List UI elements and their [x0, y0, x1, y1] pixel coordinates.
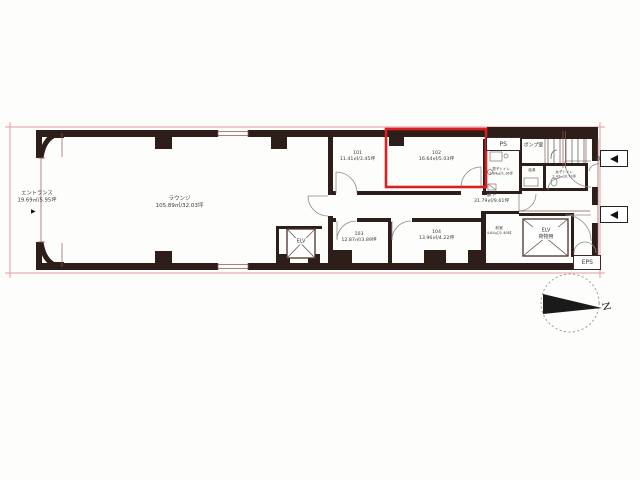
left-arrow-icon: [610, 211, 618, 219]
left-arrow-icon: [610, 155, 618, 163]
corridor-label: 廊下 31.79㎡/9.61坪: [464, 192, 519, 204]
womens-toilet-label: 女子トイレ 2.43㎡/0.73坪: [545, 170, 584, 179]
room-104-label: 104 13.96㎡/4.22坪: [391, 229, 482, 241]
room-entrance-label: エントランス 19.69㎡/5.95坪: [11, 190, 63, 204]
entry-arrow-tab-lower: [600, 206, 628, 223]
entry-arrow-tab-upper: [600, 150, 628, 167]
eps-shaft-label: EPS: [573, 255, 601, 270]
mens-toilet-label: 男子トイレ 3.84㎡/1.16坪: [484, 167, 518, 176]
ps-shaft-label: PS: [486, 137, 521, 151]
door-gaps: [336, 191, 482, 222]
elevator-freight-label: ELV 荷物用: [527, 227, 565, 240]
room-101-label: 101 11.41㎡/3.45坪: [329, 150, 386, 162]
plan-linework: [0, 0, 640, 480]
room-102-label: 102 16.64㎡/5.03坪: [390, 150, 483, 162]
room-103-label: 103 12.87㎡/3.89坪: [330, 231, 388, 243]
floor-plan: エントランス 19.69㎡/5.95坪 ▶ ラウンジ 105.89㎡/32.03…: [0, 0, 640, 480]
compass-icon: [541, 274, 602, 332]
room-lounge-label: ラウンジ 105.89㎡/32.03坪: [132, 195, 227, 209]
anteroom-label: 前室 4.64㎡/1.40坪: [483, 226, 515, 236]
kitchenette-label: 給湯: [521, 168, 543, 173]
elevator-passenger-label: ELV: [289, 238, 313, 245]
entrance-direction-icon: ▶: [31, 208, 36, 215]
